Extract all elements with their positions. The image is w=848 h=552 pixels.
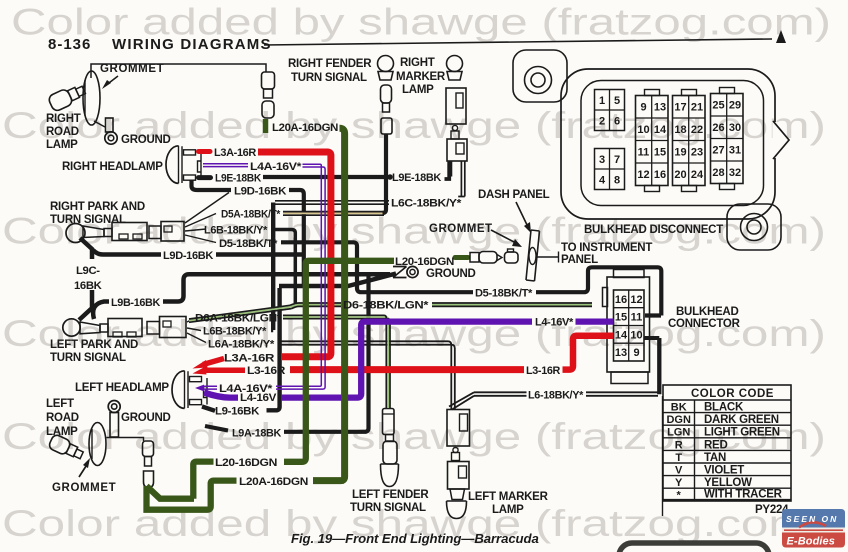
svg-text:19: 19 [674,147,686,159]
svg-text:LEFT: LEFT [46,398,74,410]
svg-text:LAMP: LAMP [46,139,78,151]
svg-text:GROMMET: GROMMET [429,223,493,235]
svg-text:L9E-18BK: L9E-18BK [392,172,442,184]
svg-text:Y: Y [675,477,683,489]
svg-text:13: 13 [654,102,666,114]
svg-text:ROAD: ROAD [46,126,79,138]
svg-text:SEEN ON: SEEN ON [786,514,838,524]
svg-text:4: 4 [599,175,606,187]
svg-text:L20-16DGN: L20-16DGN [215,457,277,469]
svg-text:L6B-18BK/Y*: L6B-18BK/Y* [204,225,268,237]
svg-text:17: 17 [674,102,686,114]
svg-text:3: 3 [599,154,605,166]
svg-text:L20A-16DGN: L20A-16DGN [239,476,308,488]
svg-text:LAMP: LAMP [46,426,78,438]
svg-text:LEFT FENDER: LEFT FENDER [352,489,429,501]
svg-text:DGN: DGN [666,414,691,426]
svg-text:22: 22 [691,124,703,136]
svg-text:WIRING DIAGRAMS: WIRING DIAGRAMS [112,36,272,53]
svg-text:10: 10 [637,124,649,136]
svg-text:TURN SIGNAL: TURN SIGNAL [350,502,426,514]
svg-text:TURN SIGNAL: TURN SIGNAL [291,72,367,84]
svg-text:E-Bodies: E-Bodies [787,536,835,548]
svg-text:11: 11 [638,147,650,159]
svg-text:RIGHT: RIGHT [46,113,81,125]
svg-text:16: 16 [615,294,627,306]
svg-text:L3A-16R: L3A-16R [214,147,256,159]
svg-text:30: 30 [729,122,741,134]
svg-text:16BK: 16BK [74,280,103,292]
svg-text:L4-16V*: L4-16V* [535,317,574,329]
svg-text:L20-16DGN: L20-16DGN [395,256,454,268]
svg-text:12: 12 [630,294,642,306]
svg-text:14: 14 [654,124,667,136]
svg-text:9: 9 [640,102,646,114]
svg-text:L9C-: L9C- [76,265,100,277]
svg-text:21: 21 [691,102,703,114]
svg-text:L20A-16DGN: L20A-16DGN [272,122,338,134]
svg-text:1: 1 [599,95,605,107]
svg-text:15: 15 [654,147,666,159]
svg-text:31: 31 [729,145,741,157]
svg-text:BLACK: BLACK [704,402,744,414]
svg-text:Fig. 19—Front End Lighting—Bar: Fig. 19—Front End Lighting—Barracuda [291,531,539,546]
svg-text:L9A-18BK: L9A-18BK [232,428,282,440]
svg-text:15: 15 [615,312,627,324]
svg-text:29: 29 [729,100,741,112]
svg-text:L6A-18BK/Y*: L6A-18BK/Y* [208,339,275,351]
svg-text:*: * [677,490,682,502]
svg-text:L4A-16V*: L4A-16V* [250,161,302,173]
svg-text:25: 25 [712,100,724,112]
svg-text:LEFT PARK AND: LEFT PARK AND [50,339,138,351]
svg-text:RIGHT HEADLAMP: RIGHT HEADLAMP [62,161,163,173]
svg-text:RIGHT PARK AND: RIGHT PARK AND [50,201,145,213]
svg-text:D6-18BK/LGN*: D6-18BK/LGN* [343,300,429,312]
svg-text:2: 2 [599,116,605,128]
svg-text:L6C-18BK/Y*: L6C-18BK/Y* [391,198,462,210]
svg-text:32: 32 [729,167,741,179]
svg-text:8-136: 8-136 [48,36,91,53]
svg-text:8: 8 [614,175,620,187]
svg-text:WITH TRACER: WITH TRACER [704,489,783,501]
svg-text:28: 28 [712,167,724,179]
svg-text:L9D-16BK: L9D-16BK [163,250,214,262]
svg-text:VIOLET: VIOLET [704,465,744,477]
svg-text:LEFT MARKER: LEFT MARKER [468,491,549,503]
svg-text:L6B-18BK/Y*: L6B-18BK/Y* [203,326,267,338]
svg-text:9: 9 [633,347,639,359]
svg-text:GROUND: GROUND [426,268,476,280]
svg-text:RED: RED [704,439,728,451]
svg-text:L4-16V: L4-16V [240,392,277,404]
svg-text:5: 5 [614,95,620,107]
svg-text:DASH PANEL: DASH PANEL [478,189,550,201]
svg-text:L9B-16BK: L9B-16BK [111,297,161,309]
svg-text:LIGHT GREEN: LIGHT GREEN [704,427,780,439]
svg-text:11: 11 [631,312,643,324]
svg-text:18: 18 [674,124,686,136]
svg-text:GROMMET: GROMMET [100,63,164,75]
svg-text:ROAD: ROAD [46,412,79,424]
svg-text:PANEL: PANEL [561,254,598,266]
svg-text:COLOR CODE: COLOR CODE [691,388,774,400]
svg-text:BK: BK [671,402,687,414]
svg-text:TAN: TAN [704,452,726,464]
svg-text:V: V [675,465,683,477]
svg-text:LAMP: LAMP [402,84,434,96]
svg-text:6: 6 [614,116,620,128]
svg-text:TO INSTRUMENT: TO INSTRUMENT [561,242,652,254]
svg-text:CONNECTOR: CONNECTOR [668,318,741,330]
svg-text:24: 24 [691,169,704,181]
svg-text:T: T [675,452,682,464]
svg-text:L3-16R: L3-16R [247,365,285,377]
svg-text:27: 27 [712,145,724,157]
svg-text:7: 7 [614,154,620,166]
svg-text:L6-18BK/Y*: L6-18BK/Y* [528,390,584,402]
svg-text:DARK GREEN: DARK GREEN [704,414,779,426]
svg-text:16: 16 [654,169,666,181]
svg-text:LEFT HEADLAMP: LEFT HEADLAMP [75,382,169,394]
svg-text:BULKHEAD: BULKHEAD [676,306,739,318]
svg-text:L9-16BK: L9-16BK [215,406,260,418]
svg-text:L9D-16BK: L9D-16BK [234,186,287,198]
svg-text:12: 12 [637,169,649,181]
svg-text:23: 23 [691,147,703,159]
svg-text:13: 13 [615,347,627,359]
svg-text:26: 26 [712,122,724,134]
svg-text:GROUND: GROUND [121,412,171,424]
svg-text:L3A-16R: L3A-16R [224,353,274,365]
svg-text:D5-18BK/T*: D5-18BK/T* [219,238,278,250]
svg-text:MARKER: MARKER [396,71,446,83]
svg-text:D6A-18BK/LGN*: D6A-18BK/LGN* [195,313,282,325]
svg-text:20: 20 [674,169,686,181]
svg-text:D5-18BK/T*: D5-18BK/T* [475,288,533,300]
svg-text:10: 10 [630,330,642,342]
svg-text:GROUND: GROUND [121,134,171,146]
svg-text:L9E-18BK: L9E-18BK [215,173,262,185]
svg-text:GROMMET: GROMMET [52,482,116,494]
svg-text:RIGHT: RIGHT [400,57,435,69]
svg-text:LGN: LGN [667,427,690,439]
svg-text:R: R [675,439,683,451]
svg-text:YELLOW: YELLOW [704,477,752,489]
svg-text:TURN SIGNAL: TURN SIGNAL [50,214,126,226]
svg-text:14: 14 [615,330,628,342]
svg-text:L3-16R: L3-16R [526,365,560,377]
svg-text:BULKHEAD DISCONNECT: BULKHEAD DISCONNECT [584,224,723,236]
svg-text:RIGHT FENDER: RIGHT FENDER [288,58,372,70]
svg-text:D5A-18BK/T*: D5A-18BK/T* [221,209,281,221]
svg-text:TURN SIGNAL: TURN SIGNAL [50,352,126,364]
svg-text:LAMP: LAMP [492,504,524,516]
